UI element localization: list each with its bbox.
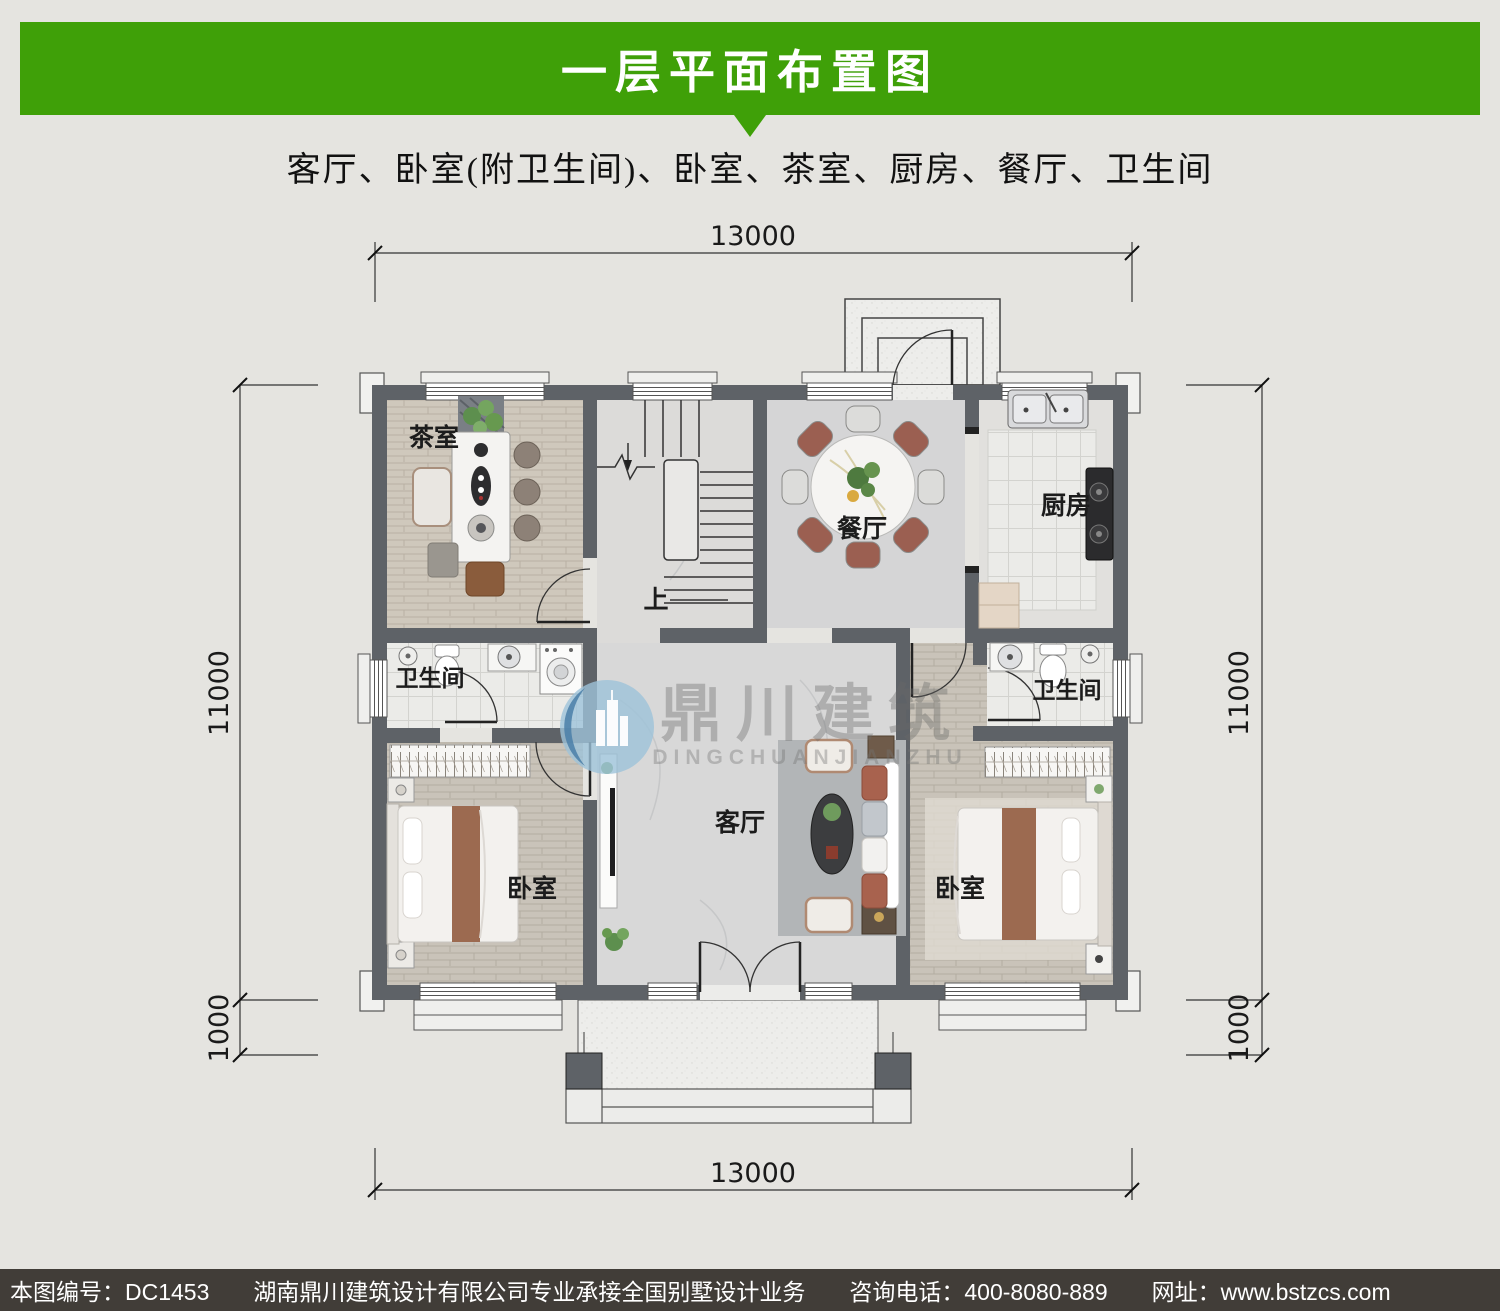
sofa-cushion [862,766,887,800]
footer-company: 湖南鼎川建筑设计有限公司专业承接全国别墅设计业务 [253,1273,805,1307]
footer-website: 网址：www.bstzcs.com [1152,1273,1391,1307]
pillow [403,818,422,864]
porch-column-left [566,1053,602,1089]
watermark-en-text: DINGCHUANJIANZHU [652,746,967,769]
footer-bar: 本图编号：DC1453 湖南鼎川建筑设计有限公司专业承接全国别墅设计业务 咨询电… [0,1269,1500,1311]
sofa-cushion [862,802,887,836]
watermark-cn-text: 鼎川建筑 [660,680,964,749]
floor-plan-canvas: 鼎川建筑 DINGCHUANJIANZHU 茶室 餐厅 厨房 卫生间 卫生间 客… [0,215,1500,1269]
watermark: 鼎川建筑 DINGCHUANJIANZHU [560,680,968,774]
sofa-cushion [862,838,887,872]
tea-stool [514,515,540,541]
pillow [1062,818,1080,862]
label-stairs-up: 上 [643,586,668,614]
footer-plan-number: 本图编号：DC1453 [10,1273,209,1307]
footer-phone: 咨询电话：400-8080-889 [849,1273,1107,1307]
label-living: 客厅 [715,808,765,837]
bed-runner [1002,808,1036,940]
dim-left-porch: 1000 [204,994,235,1063]
room-list-subtitle: 客厅、卧室(附卫生间)、卧室、茶室、厨房、餐厅、卫生间 [0,142,1500,191]
label-bath-left: 卫生间 [396,665,465,691]
bed-headboard [387,804,399,944]
label-bed-left: 卧室 [507,874,557,903]
dim-right-main: 11000 [1224,650,1255,736]
tea-chair [413,468,451,526]
label-tea-room: 茶室 [409,423,459,452]
sofa-cushion [862,874,887,908]
label-bed-right: 卧室 [935,874,985,903]
porch-steps [566,1089,911,1123]
back-door-gap [893,385,953,400]
label-kitchen: 厨房 [1041,491,1091,520]
front-porch [566,1000,911,1123]
dim-bottom: 13000 [710,1158,796,1189]
tea-stool [514,479,540,505]
kitchen-door-stop [965,566,979,573]
dim-top: 13000 [710,221,796,252]
header-banner: 一层平面布置图 [20,22,1480,115]
dining-furniture [782,406,944,568]
toilet-icon [1040,644,1066,655]
bed-headboard [1098,802,1112,946]
dim-left-main: 11000 [204,650,235,736]
tea-side-stool [428,543,458,577]
tea-stool [514,442,540,468]
tv-icon [610,788,615,876]
bed-runner [452,806,480,942]
armchair [806,898,852,932]
porch-column-right [875,1053,911,1089]
toilet-icon [435,645,459,657]
dim-right-porch: 1000 [1224,994,1255,1063]
pillow [403,872,422,918]
label-dining: 餐厅 [837,515,887,543]
kitchen-door-stop [965,427,979,434]
pillow [1062,870,1080,914]
page: 一层平面布置图 客厅、卧室(附卫生间)、卧室、茶室、厨房、餐厅、卫生间 [0,0,1500,1311]
page-title: 一层平面布置图 [561,36,939,102]
tea-ottoman [466,562,504,596]
header-pointer-triangle [734,115,766,137]
label-bath-right: 卫生间 [1033,677,1102,703]
